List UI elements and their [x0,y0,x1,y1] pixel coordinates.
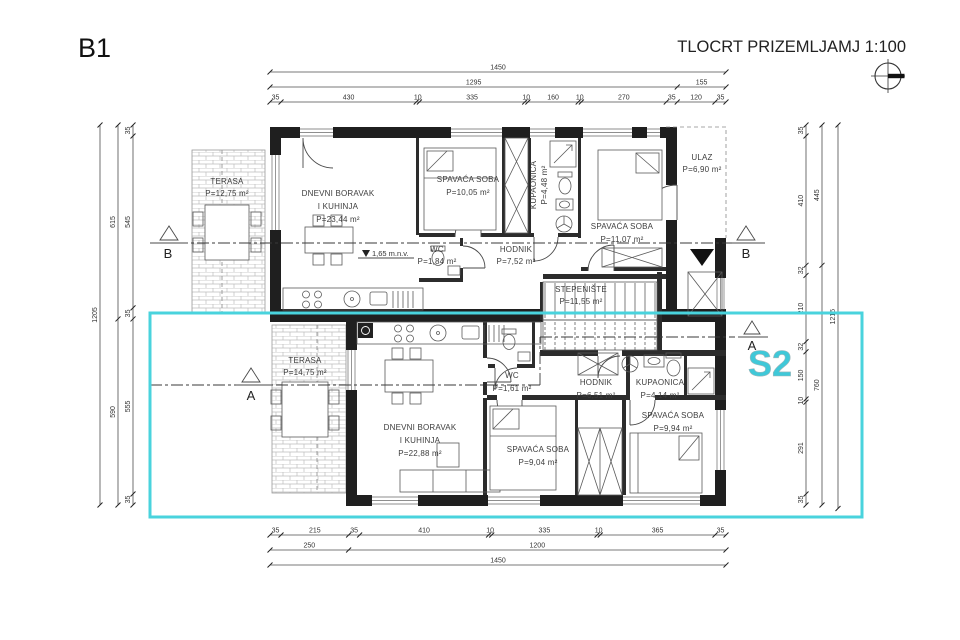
section-b-left-label: B [164,246,173,261]
dim-top-mid: 1295155 [268,80,729,90]
washer-icon [344,291,360,307]
svg-text:1450: 1450 [490,558,506,565]
room-bedroom1-lower: SPAVAĆA SOBA [507,445,570,454]
room-bedroom2-upper: SPAVAĆA SOBA [591,222,654,231]
svg-text:410: 410 [798,195,805,207]
dim-right-overall: 1216 [830,123,841,511]
elevation-marker: 1,65 m.n.v. [358,249,414,258]
closet-upper [505,138,528,233]
svg-text:760: 760 [814,379,821,391]
room-terasa-upper: TERASA [210,177,244,186]
room-wc-lower: WC [505,371,519,380]
svg-text:P=11,55 m²: P=11,55 m² [560,297,603,306]
room-bedroom1-upper: SPAVAĆA SOBA [437,175,500,184]
room-living-lower: DNEVNI BORAVAK [384,423,457,432]
svg-text:35: 35 [798,495,805,503]
room-bedroom2-lower: SPAVAĆA SOBA [642,411,705,420]
svg-text:P=9,04 m²: P=9,04 m² [519,458,558,467]
svg-text:160: 160 [547,95,559,102]
svg-text:590: 590 [110,406,117,418]
room-wc-upper: WC [430,245,444,254]
svg-text:615: 615 [110,216,117,228]
room-living-upper: DNEVNI BORAVAK [302,189,375,198]
svg-text:P=11,07 m²: P=11,07 m² [601,235,644,244]
dim-right-mid: 445760 [814,123,825,508]
room-ulaz: ULAZ [691,153,712,162]
svg-text:10: 10 [595,528,603,535]
svg-text:I KUHINJA: I KUHINJA [318,202,359,211]
bed-lower-2 [630,433,702,493]
sink-icon [462,326,479,339]
svg-text:10: 10 [798,397,805,405]
dim-top-detail: 354301033510160102703512035 [268,95,729,105]
svg-text:1216: 1216 [830,309,837,325]
dim-bottom-detail: 3521535410103351036535 [268,528,729,538]
svg-text:270: 270 [618,95,630,102]
svg-text:35: 35 [272,95,280,102]
sink-icon [370,292,387,305]
svg-text:150: 150 [798,369,805,381]
kitchen-counter-lower [357,322,541,344]
svg-text:I KUHINJA: I KUHINJA [400,436,441,445]
dim-left-overall: 1205 [92,123,103,508]
dim-bottom-mid: 2501200 [268,543,729,553]
room-stepeniste: STEPENIŠTE [555,285,607,294]
svg-text:10: 10 [576,95,584,102]
svg-text:35: 35 [125,309,132,317]
svg-text:155: 155 [696,80,708,87]
svg-text:1295: 1295 [466,80,482,87]
svg-text:P=6,51 m²: P=6,51 m² [577,391,616,400]
page-title: B1 [78,33,111,63]
svg-text:120: 120 [690,95,702,102]
svg-text:445: 445 [814,189,821,201]
dim-left-detail: 355453555535 [125,123,136,508]
svg-text:35: 35 [798,127,805,135]
svg-text:35: 35 [350,528,358,535]
svg-text:365: 365 [652,528,664,535]
svg-text:P=1,61 m²: P=1,61 m² [493,384,532,393]
room-living-upper-area: P=23,44 m² [316,215,360,224]
svg-text:P=10,05 m²: P=10,05 m² [446,188,490,197]
svg-text:P=7,52 m²: P=7,52 m² [497,257,536,266]
toilet-icon [503,335,515,350]
bed-upper-2 [598,150,662,220]
toilet-icon [559,178,571,194]
svg-text:1200: 1200 [530,543,546,550]
washer-icon [430,325,446,341]
elevation-note: 1,65 m.n.v. [372,249,409,258]
svg-text:35: 35 [125,495,132,503]
svg-text:P=1,84 m²: P=1,84 m² [418,257,457,266]
floorplan-page: B1 TLOCRT PRIZEMLJA MJ 1:100 [0,0,960,640]
svg-text:1450: 1450 [490,65,506,72]
svg-text:P=4,48 m²: P=4,48 m² [540,165,549,204]
floorplan-drawing: B1 TLOCRT PRIZEMLJA MJ 1:100 [0,0,960,640]
room-terasa-lower: TERASA [288,356,322,365]
room-bath-upper: KUPAONICA [529,160,538,209]
svg-text:555: 555 [125,401,132,413]
dim-right-detail: 3541032210321501029135 [798,123,809,508]
s2-label: S2 [748,343,792,384]
room-terasa-upper-area: P=12,75 m² [205,189,249,198]
plan-title: TLOCRT PRIZEMLJA [677,38,838,56]
svg-text:P=9,94 m²: P=9,94 m² [654,424,693,433]
svg-text:35: 35 [272,528,280,535]
svg-text:35: 35 [717,528,725,535]
svg-text:35: 35 [125,127,132,135]
entry-arrow-icon [690,249,714,266]
svg-text:215: 215 [309,528,321,535]
dim-left-mid: 615590 [110,123,121,508]
dim-top-overall: 1450 [268,65,729,75]
svg-text:410: 410 [418,528,430,535]
toilet-icon [667,360,680,376]
room-bath-lower: KUPAONICA [636,378,685,387]
svg-text:10: 10 [486,528,494,535]
svg-text:P=14,75 m²: P=14,75 m² [283,368,327,377]
room-hodnik-upper: HODNIK [500,245,533,254]
svg-text:545: 545 [125,216,132,228]
svg-text:10: 10 [522,95,530,102]
svg-text:35: 35 [668,95,676,102]
svg-text:P=6,90 m²: P=6,90 m² [683,165,722,174]
svg-text:35: 35 [717,95,725,102]
svg-text:430: 430 [343,95,355,102]
dim-bottom-overall: 1450 [268,558,729,568]
svg-text:P=4,14 m²: P=4,14 m² [641,391,680,400]
svg-text:250: 250 [303,543,315,550]
svg-text:32: 32 [798,266,805,274]
svg-text:335: 335 [539,528,551,535]
svg-text:32: 32 [798,343,805,351]
plan-scale: MJ 1:100 [838,38,906,56]
svg-text:291: 291 [798,442,805,454]
section-a-left-label: A [247,388,256,403]
svg-text:P=22,88 m²: P=22,88 m² [398,449,442,458]
svg-text:1205: 1205 [92,307,99,323]
room-hodnik-lower: HODNIK [580,378,613,387]
svg-text:10: 10 [414,95,422,102]
section-b-right-label: B [742,246,751,261]
north-compass-icon [871,59,905,93]
svg-text:335: 335 [466,95,478,102]
